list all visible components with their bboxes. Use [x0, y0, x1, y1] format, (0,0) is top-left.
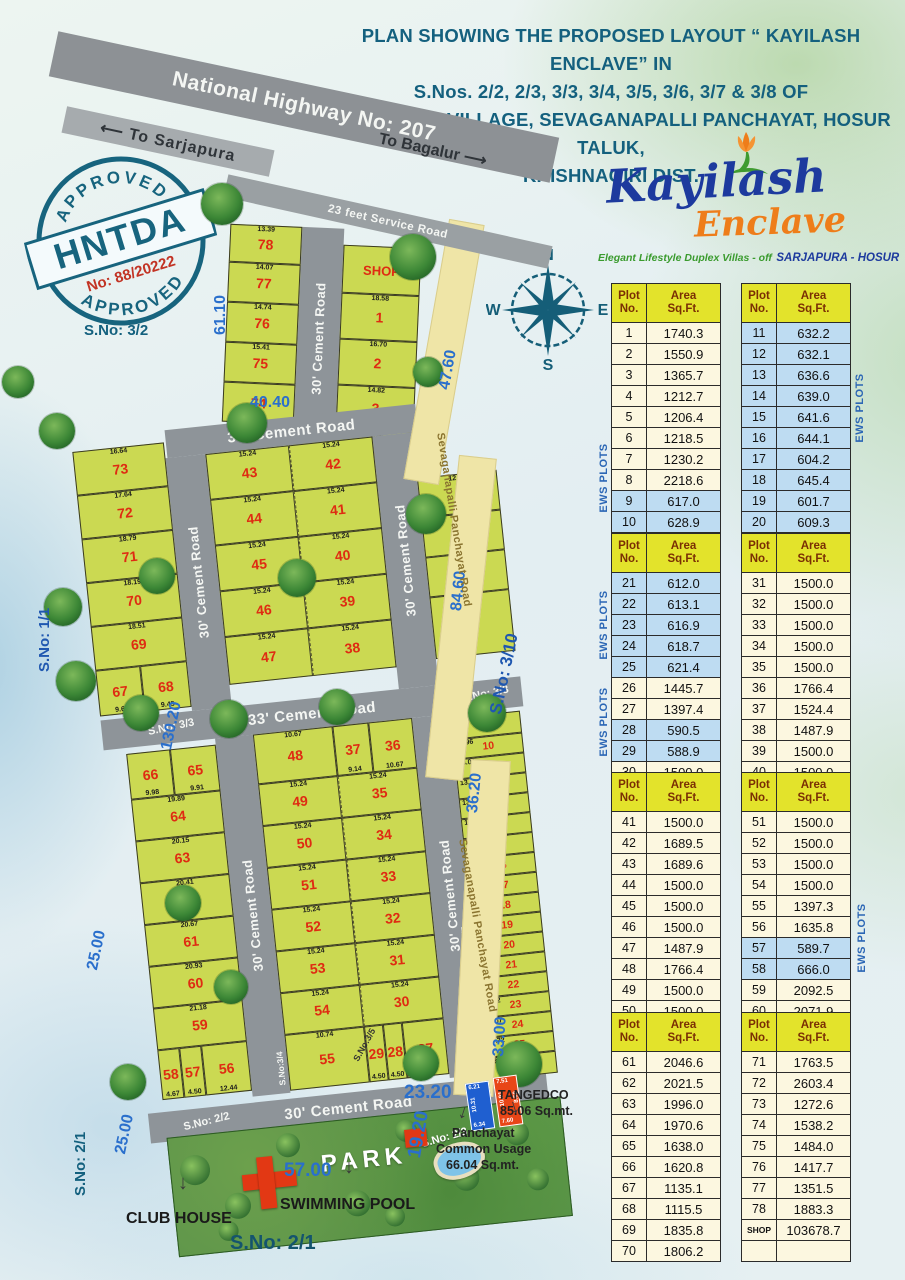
table-header-area: AreaSq.Ft.: [647, 284, 720, 322]
area-table: PlotNo.AreaSq.Ft.511500.0521500.0531500.…: [741, 772, 851, 1022]
plot-number: 71: [121, 549, 138, 565]
cell-plot-no: [742, 1241, 777, 1261]
table-row: 21550.9: [612, 344, 720, 365]
table-row: 31365.7: [612, 365, 720, 386]
cell-plot-no: 62: [612, 1073, 647, 1093]
table-header-plot-no: PlotNo.: [612, 1013, 647, 1051]
cell-plot-no: 17: [742, 449, 777, 469]
plot-dimension: 14.82: [338, 386, 414, 396]
table-row: 441500.0: [612, 875, 720, 896]
area-table: PlotNo.AreaSq.Ft.411500.0421689.5431689.…: [611, 772, 721, 1022]
table-row: 711763.5: [742, 1052, 850, 1073]
cell-area: 641.6: [777, 410, 850, 425]
plot-number: 52: [305, 919, 322, 935]
header-line: Plot: [612, 1019, 646, 1032]
header-line: Plot: [742, 779, 776, 792]
table-row: 29588.9: [612, 741, 720, 762]
cell-area: 1206.4: [647, 410, 720, 425]
cell-plot-no: 35: [742, 657, 777, 677]
plot-number: 29: [368, 1046, 385, 1062]
plot-dimension: 14.07: [229, 263, 299, 273]
table-row: 651638.0: [612, 1136, 720, 1157]
cell-area: 1351.5: [777, 1181, 850, 1196]
cell-plot-no: 68: [612, 1199, 647, 1219]
park-tree-icon: [275, 1132, 301, 1158]
plot-number: 37: [344, 742, 361, 758]
header-line: Area: [647, 540, 720, 553]
header-line: Area: [777, 779, 850, 792]
table-header: PlotNo.AreaSq.Ft.: [612, 534, 720, 573]
cell-plot-no: 63: [612, 1094, 647, 1114]
cell-area: 1500.0: [777, 660, 850, 675]
plot-38: 15.2438: [308, 620, 397, 677]
table-row: 321500.0: [742, 594, 850, 615]
cell-area: 645.4: [777, 473, 850, 488]
map-label: S.No: 2/1: [230, 1232, 316, 1255]
cell-area: 613.1: [647, 597, 720, 612]
tree-icon: [278, 559, 316, 597]
plot-2: 16.702: [338, 339, 418, 388]
area-table: PlotNo.AreaSq.Ft.711763.5722603.4731272.…: [741, 1012, 851, 1262]
cell-plot-no: SHOP: [742, 1220, 777, 1240]
table-row: 381487.9: [742, 720, 850, 741]
tree-icon: [403, 1045, 439, 1081]
table-row: 82218.6: [612, 470, 720, 491]
ews-plots-label: EWS PLOTS: [854, 373, 866, 442]
table-row: 10628.9: [612, 512, 720, 532]
plot-75: 15.4175: [224, 342, 298, 385]
cell-area: 639.0: [777, 389, 850, 404]
plot-number: 51: [300, 877, 317, 893]
plot-number: 78: [257, 237, 273, 252]
header-line: Plot: [612, 540, 646, 553]
plot-78: 13.3978: [229, 224, 303, 265]
plot-56: 12.4456: [201, 1041, 252, 1096]
table-row: 421689.5: [612, 833, 720, 854]
table-header: PlotNo.AreaSq.Ft.: [742, 773, 850, 812]
plot-number: 68: [157, 679, 174, 695]
table-row: 19601.7: [742, 491, 850, 512]
cell-plot-no: 21: [612, 573, 647, 593]
plot-number: 39: [339, 593, 356, 609]
plot-36: 10.6736: [368, 718, 417, 772]
cell-plot-no: 66: [612, 1157, 647, 1177]
cell-area: 1806.2: [647, 1244, 720, 1259]
cell-plot-no: 78: [742, 1199, 777, 1219]
table-header-plot-no: PlotNo.: [742, 773, 777, 811]
cell-plot-no: 29: [612, 741, 647, 761]
header-line: Sq.Ft.: [777, 1032, 850, 1045]
plot-number: 59: [191, 1017, 208, 1033]
map-label: SWIMMING POOL: [280, 1196, 415, 1214]
utility-plot-dim: 7.51: [496, 1078, 508, 1086]
header-line: Plot: [742, 540, 776, 553]
header-line: Sq.Ft.: [647, 1032, 720, 1045]
plot-number: 34: [376, 827, 393, 843]
cell-plot-no: 67: [612, 1178, 647, 1198]
table-row: [742, 1241, 850, 1261]
cell-plot-no: 74: [742, 1115, 777, 1135]
plot-number: 55: [319, 1051, 336, 1067]
header-line: Area: [777, 540, 850, 553]
cell-plot-no: 32: [742, 594, 777, 614]
plot-number: 77: [256, 276, 272, 291]
cell-area: 644.1: [777, 431, 850, 446]
plot-number: 66: [142, 767, 159, 783]
header-line: Plot: [742, 290, 776, 303]
table-header-area: AreaSq.Ft.: [647, 773, 720, 811]
cell-area: 616.9: [647, 618, 720, 633]
cell-area: 1524.4: [777, 702, 850, 717]
cell-plot-no: 64: [612, 1115, 647, 1135]
plot-66: 9.9866: [126, 749, 175, 799]
table-header-area: AreaSq.Ft.: [647, 1013, 720, 1051]
plot-number: 50: [296, 835, 313, 851]
cell-area: 1689.5: [647, 836, 720, 851]
table-header-plot-no: PlotNo.: [612, 773, 647, 811]
cell-plot-no: 70: [612, 1241, 647, 1261]
header-line: Sq.Ft.: [777, 303, 850, 316]
cell-plot-no: 1: [612, 323, 647, 343]
header-line: No.: [742, 1032, 776, 1045]
plot-number: 36: [384, 737, 401, 753]
cell-plot-no: 65: [612, 1136, 647, 1156]
cell-plot-no: 56: [742, 917, 777, 937]
table-row: 16644.1: [742, 428, 850, 449]
cell-area: 1500.0: [777, 576, 850, 591]
cell-area: 1763.5: [777, 1055, 850, 1070]
cell-area: 628.9: [647, 515, 720, 530]
table-row: 11632.2: [742, 323, 850, 344]
table-row: 592092.5: [742, 980, 850, 1001]
header-line: Plot: [612, 290, 646, 303]
map-label: 25.00: [84, 929, 110, 972]
plot-number: 31: [389, 952, 406, 968]
cell-area: 632.2: [777, 326, 850, 341]
cell-area: 1500.0: [777, 836, 850, 851]
table-header: PlotNo.AreaSq.Ft.: [742, 1013, 850, 1052]
cell-plot-no: 15: [742, 407, 777, 427]
cell-plot-no: 51: [742, 812, 777, 832]
cell-plot-no: 37: [742, 699, 777, 719]
cell-plot-no: 26: [612, 678, 647, 698]
plot-number: 41: [329, 502, 346, 518]
cell-plot-no: 75: [742, 1136, 777, 1156]
plot-number: 57: [184, 1064, 201, 1080]
cell-area: 1417.7: [777, 1160, 850, 1175]
cell-area: 589.7: [777, 941, 850, 956]
header-line: Area: [647, 1019, 720, 1032]
table-header: PlotNo.AreaSq.Ft.: [742, 534, 850, 573]
plot-number: 44: [246, 511, 263, 527]
table-row: 661620.8: [612, 1157, 720, 1178]
plot-number: 70: [126, 593, 143, 609]
cell-area: 1135.1: [647, 1181, 720, 1196]
map-label: 40.40: [250, 394, 290, 412]
plot-number: 33: [380, 868, 397, 884]
cell-area: 103678.7: [777, 1223, 850, 1238]
plot-number: 48: [287, 748, 304, 764]
map-label: ↓: [344, 1156, 354, 1179]
cell-area: 2046.6: [647, 1055, 720, 1070]
cell-area: 1740.3: [647, 326, 720, 341]
cell-plot-no: 27: [612, 699, 647, 719]
map-label: 61.10: [212, 295, 230, 335]
table-row: 9617.0: [612, 491, 720, 512]
plot-number: 42: [324, 456, 341, 472]
plot-number: 69: [130, 636, 147, 652]
cell-plot-no: 23: [612, 615, 647, 635]
tree-icon: [165, 885, 201, 921]
plot-number: 49: [292, 793, 309, 809]
plot-number: 76: [254, 316, 270, 331]
cell-plot-no: 10: [612, 512, 647, 532]
plot-number: 53: [309, 960, 326, 976]
plot-dimension: 16.70: [340, 340, 416, 350]
cell-area: 1550.9: [647, 347, 720, 362]
cell-area: 1445.7: [647, 681, 720, 696]
cell-plot-no: 52: [742, 833, 777, 853]
club-house-icon: [256, 1156, 277, 1209]
table-row: 14639.0: [742, 386, 850, 407]
cell-plot-no: 8: [612, 470, 647, 490]
cell-plot-no: 53: [742, 854, 777, 874]
cell-plot-no: 25: [612, 657, 647, 677]
table-row: 71230.2: [612, 449, 720, 470]
table-row: 701806.2: [612, 1241, 720, 1261]
cell-plot-no: 72: [742, 1073, 777, 1093]
plot-number: 2: [373, 356, 381, 370]
table-row: 51206.4: [612, 407, 720, 428]
table-row: 612046.6: [612, 1052, 720, 1073]
cell-area: 1538.2: [777, 1118, 850, 1133]
plot-dimension: 18.58: [342, 294, 418, 304]
plot-number: 73: [112, 461, 129, 477]
cell-plot-no: 2: [612, 344, 647, 364]
table-row: 531500.0: [742, 854, 850, 875]
cell-plot-no: 33: [742, 615, 777, 635]
table-row: 341500.0: [742, 636, 850, 657]
map-label: S.No: 3/2: [84, 322, 148, 339]
ews-plots-label: EWS PLOTS: [856, 903, 868, 972]
cell-area: 621.4: [647, 660, 720, 675]
park-label: PARK: [320, 1142, 409, 1179]
header-line: Sq.Ft.: [647, 303, 720, 316]
table-header-area: AreaSq.Ft.: [647, 534, 720, 572]
tree-icon: [139, 558, 175, 594]
cell-plot-no: 12: [742, 344, 777, 364]
plot-number: 58: [162, 1066, 179, 1082]
plot-dimension: 15.41: [226, 343, 296, 353]
cell-area: 1689.6: [647, 857, 720, 872]
cell-area: 1365.7: [647, 368, 720, 383]
cell-plot-no: 48: [612, 959, 647, 979]
table-row: 631996.0: [612, 1094, 720, 1115]
cell-area: 632.1: [777, 347, 850, 362]
tree-icon: [210, 700, 248, 738]
table-row: 411500.0: [612, 812, 720, 833]
table-row: 561635.8: [742, 917, 850, 938]
cell-plot-no: 7: [612, 449, 647, 469]
cell-plot-no: 14: [742, 386, 777, 406]
cell-area: 1272.6: [777, 1097, 850, 1112]
table-row: 22613.1: [612, 594, 720, 615]
tree-icon: [406, 494, 446, 534]
tree-icon: [201, 183, 243, 225]
plot-dimension: 16.64: [73, 443, 163, 459]
cell-plot-no: 46: [612, 917, 647, 937]
table-row: 361766.4: [742, 678, 850, 699]
cell-area: 590.5: [647, 723, 720, 738]
table-row: 351500.0: [742, 657, 850, 678]
tree-icon: [56, 661, 96, 701]
header-line: No.: [612, 792, 646, 805]
map-label: S.No: 2/1: [72, 1132, 89, 1196]
cell-plot-no: 18: [742, 470, 777, 490]
cell-plot-no: 61: [612, 1052, 647, 1072]
header-line: Area: [647, 290, 720, 303]
plot-number: 72: [116, 505, 133, 521]
cell-area: 1500.0: [647, 920, 720, 935]
plot-number: 65: [187, 762, 204, 778]
table-row: 28590.5: [612, 720, 720, 741]
plot-number: 56: [218, 1060, 235, 1076]
cell-area: 1500.0: [777, 878, 850, 893]
table-row: 741538.2: [742, 1115, 850, 1136]
table-row: 21612.0: [612, 573, 720, 594]
cell-area: 1500.0: [647, 878, 720, 893]
cell-plot-no: 57: [742, 938, 777, 958]
plot-number: 67: [112, 684, 129, 700]
cell-area: 1218.5: [647, 431, 720, 446]
plot-dimension: 14.74: [228, 303, 298, 313]
plot-number: 46: [255, 602, 272, 618]
cell-area: 1397.3: [777, 899, 850, 914]
table-row: 15641.6: [742, 407, 850, 428]
cell-area: 2218.6: [647, 473, 720, 488]
table-row: 731272.6: [742, 1094, 850, 1115]
cell-area: 617.0: [647, 494, 720, 509]
plot-number: 45: [251, 556, 268, 572]
table-row: 511500.0: [742, 812, 850, 833]
table-row: 20609.3: [742, 512, 850, 532]
cell-plot-no: 38: [742, 720, 777, 740]
cell-area: 1230.2: [647, 452, 720, 467]
map-label: S.No: 1/1: [36, 608, 53, 672]
header-line: Sq.Ft.: [647, 792, 720, 805]
table-row: 391500.0: [742, 741, 850, 762]
table-row: 371524.4: [742, 699, 850, 720]
map-label: Common Usage: [436, 1142, 531, 1156]
table-header-plot-no: PlotNo.: [742, 534, 777, 572]
utility-plot-dim: 6.21: [468, 1084, 480, 1092]
table-row: SHOP103678.7: [742, 1220, 850, 1241]
cell-area: 2021.5: [647, 1076, 720, 1091]
table-row: 681115.5: [612, 1199, 720, 1220]
table-row: 691835.8: [612, 1220, 720, 1241]
table-header: PlotNo.AreaSq.Ft.: [612, 1013, 720, 1052]
header-line: Sq.Ft.: [777, 792, 850, 805]
cell-plot-no: 6: [612, 428, 647, 448]
map-label: 57.00: [284, 1160, 332, 1182]
cell-area: 1970.6: [647, 1118, 720, 1133]
cell-area: 2603.4: [777, 1076, 850, 1091]
cell-plot-no: 41: [612, 812, 647, 832]
cell-area: 1500.0: [777, 815, 850, 830]
plot-number: 75: [252, 356, 268, 371]
map-label: 23.20: [404, 1082, 452, 1104]
table-header-plot-no: PlotNo.: [612, 534, 647, 572]
cell-plot-no: 3: [612, 365, 647, 385]
area-table: PlotNo.AreaSq.Ft.11632.212632.113636.614…: [741, 283, 851, 533]
plot-number: 54: [314, 1002, 331, 1018]
cell-plot-no: 4: [612, 386, 647, 406]
cell-plot-no: 34: [742, 636, 777, 656]
plot-number: 43: [241, 465, 258, 481]
cell-area: 1115.5: [647, 1202, 720, 1217]
table-row: 781883.3: [742, 1199, 850, 1220]
table-row: 58666.0: [742, 959, 850, 980]
plot-dimension: 4.67: [163, 1090, 184, 1099]
cell-area: 636.6: [777, 368, 850, 383]
cell-plot-no: 71: [742, 1052, 777, 1072]
cell-area: 1883.3: [777, 1202, 850, 1217]
table-header: PlotNo.AreaSq.Ft.: [742, 284, 850, 323]
cell-area: 612.0: [647, 576, 720, 591]
cell-area: 1500.0: [777, 744, 850, 759]
cell-area: 609.3: [777, 515, 850, 530]
plot-number: 64: [169, 808, 186, 824]
header-line: Area: [777, 290, 850, 303]
cell-plot-no: 58: [742, 959, 777, 979]
tree-icon: [110, 1064, 146, 1100]
table-row: 18645.4: [742, 470, 850, 491]
cell-plot-no: 28: [612, 720, 647, 740]
plot-37: 9.1437: [332, 723, 373, 776]
cell-plot-no: 20: [742, 512, 777, 532]
table-row: 12632.1: [742, 344, 850, 365]
cell-plot-no: 13: [742, 365, 777, 385]
table-row: 271397.4: [612, 699, 720, 720]
table-header: PlotNo.AreaSq.Ft.: [612, 284, 720, 323]
road: National Highway No: 207To Bagalur ⟶: [49, 31, 559, 182]
cell-plot-no: 49: [612, 980, 647, 1000]
table-row: 451500.0: [612, 896, 720, 917]
cell-area: 1500.0: [777, 639, 850, 654]
header-line: No.: [742, 792, 776, 805]
table-header-plot-no: PlotNo.: [612, 284, 647, 322]
plot-number: 38: [344, 640, 361, 656]
table-row: 521500.0: [742, 833, 850, 854]
plot-number: 1: [375, 310, 383, 324]
cell-area: 1500.0: [777, 618, 850, 633]
cell-plot-no: 24: [612, 636, 647, 656]
cell-area: 2092.5: [777, 983, 850, 998]
cell-area: 588.9: [647, 744, 720, 759]
cell-area: 1212.7: [647, 389, 720, 404]
table-header-plot-no: PlotNo.: [742, 1013, 777, 1051]
plot-48: 10.6748: [253, 726, 338, 784]
header-line: No.: [742, 303, 776, 316]
plot-number: 63: [174, 850, 191, 866]
table-row: 751484.0: [742, 1136, 850, 1157]
cell-area: 1766.4: [777, 681, 850, 696]
table-row: 551397.3: [742, 896, 850, 917]
cell-plot-no: 11: [742, 323, 777, 343]
plot-dimension: 13.39: [231, 225, 301, 235]
cell-area: 604.2: [777, 452, 850, 467]
cell-plot-no: 76: [742, 1157, 777, 1177]
